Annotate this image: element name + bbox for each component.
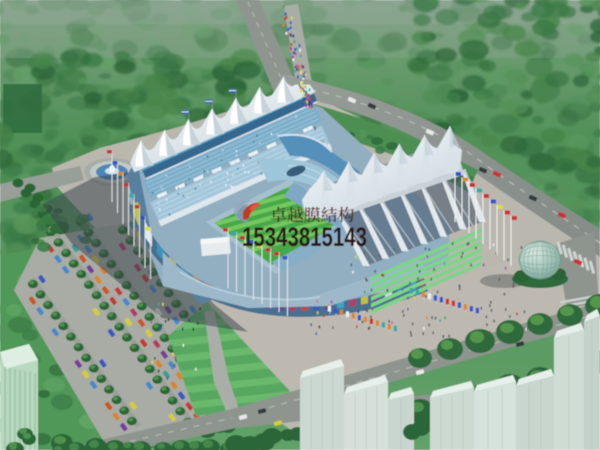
svg-text:15343815143: 15343815143: [242, 222, 367, 252]
